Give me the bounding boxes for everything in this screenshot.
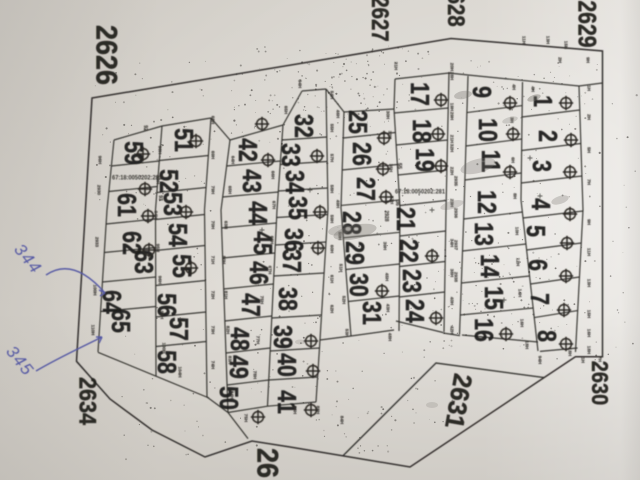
svg-text:1H: 1H <box>587 85 592 92</box>
svg-text:10: 10 <box>472 118 502 142</box>
svg-text:67:18:0050202:281: 67:18:0050202:281 <box>395 189 446 195</box>
svg-text:43H: 43H <box>386 304 391 313</box>
svg-text:54H: 54H <box>330 91 335 100</box>
svg-text:37: 37 <box>276 249 306 273</box>
svg-text:19H: 19H <box>450 103 455 112</box>
svg-text:46H: 46H <box>336 110 341 119</box>
svg-text:4: 4 <box>525 198 555 211</box>
svg-text:35H: 35H <box>389 164 394 173</box>
svg-text:65H: 65H <box>228 186 233 195</box>
svg-text:26: 26 <box>346 142 376 166</box>
svg-text:31H: 31H <box>394 62 399 71</box>
svg-text:35: 35 <box>282 196 312 220</box>
svg-text:29H: 29H <box>450 112 455 121</box>
svg-text:72H: 72H <box>211 291 216 300</box>
svg-text:62H: 62H <box>330 305 335 314</box>
svg-text:2626: 2626 <box>89 25 123 85</box>
svg-text:100H: 100H <box>93 285 98 297</box>
svg-text:61: 61 <box>111 193 141 217</box>
svg-text:2634: 2634 <box>74 377 101 425</box>
svg-text:2629: 2629 <box>573 0 601 47</box>
svg-text:28H: 28H <box>450 72 455 81</box>
svg-text:55H: 55H <box>330 124 335 133</box>
svg-text:60H: 60H <box>330 245 335 254</box>
svg-text:30: 30 <box>343 273 373 297</box>
svg-text:57: 57 <box>163 317 193 341</box>
svg-text:11H: 11H <box>522 36 527 45</box>
svg-text:15H: 15H <box>587 310 592 319</box>
svg-text:16: 16 <box>468 318 498 342</box>
svg-text:18H: 18H <box>568 348 573 357</box>
svg-text:69H: 69H <box>211 151 216 160</box>
svg-text:8: 8 <box>531 330 561 342</box>
svg-text:94H: 94H <box>298 80 303 89</box>
svg-text:58H: 58H <box>330 185 335 194</box>
svg-text:45H: 45H <box>385 273 390 282</box>
svg-text:2630: 2630 <box>587 361 614 405</box>
svg-text:37H: 37H <box>390 196 395 205</box>
svg-text:2928: 2928 <box>383 210 389 221</box>
svg-text:13: 13 <box>468 222 498 246</box>
svg-text:6: 6 <box>522 259 552 271</box>
svg-text:65: 65 <box>105 309 135 333</box>
svg-text:2: 2 <box>532 130 562 142</box>
svg-text:63H: 63H <box>224 221 229 230</box>
svg-text:16H: 16H <box>587 329 592 338</box>
svg-text:8H: 8H <box>513 193 518 200</box>
svg-text:2935: 2935 <box>454 176 459 187</box>
svg-text:2936: 2936 <box>454 208 459 219</box>
svg-text:57H: 57H <box>330 154 335 163</box>
svg-text:15H: 15H <box>564 41 569 50</box>
svg-text:94H: 94H <box>538 356 543 365</box>
svg-text:7H: 7H <box>587 179 592 186</box>
svg-text:27: 27 <box>350 177 380 201</box>
svg-text:9H: 9H <box>587 219 592 226</box>
svg-text:6TH: 6TH <box>268 266 273 275</box>
svg-text:94H: 94H <box>154 211 159 220</box>
svg-text:42: 42 <box>232 138 262 162</box>
svg-text:48H: 48H <box>388 333 393 342</box>
svg-text:86H: 86H <box>293 406 298 415</box>
svg-text:1H: 1H <box>581 357 586 364</box>
svg-text:14: 14 <box>474 254 504 278</box>
svg-text:67H: 67H <box>272 201 277 210</box>
svg-text:2H: 2H <box>587 114 592 121</box>
svg-text:55: 55 <box>396 163 402 169</box>
svg-text:96H: 96H <box>98 156 103 165</box>
svg-text:32: 32 <box>288 114 318 138</box>
svg-text:15: 15 <box>478 286 508 310</box>
svg-text:77H: 77H <box>256 336 261 345</box>
svg-text:12: 12 <box>471 190 501 214</box>
svg-text:53H: 53H <box>345 329 350 338</box>
svg-text:18H: 18H <box>525 341 530 350</box>
svg-text:80H: 80H <box>222 256 227 265</box>
svg-text:75H: 75H <box>244 414 249 423</box>
svg-text:34: 34 <box>279 170 309 194</box>
svg-text:84H: 84H <box>340 416 345 425</box>
svg-text:66H: 66H <box>271 171 276 180</box>
svg-text:51: 51 <box>168 128 198 152</box>
svg-text:104H: 104H <box>178 367 183 379</box>
svg-text:20H: 20H <box>450 63 455 72</box>
svg-text:83H: 83H <box>228 356 233 365</box>
svg-text:56: 56 <box>151 293 181 317</box>
svg-text:65H: 65H <box>284 106 289 115</box>
svg-text:22H: 22H <box>450 167 455 176</box>
svg-text:2628: 2628 <box>443 0 470 27</box>
svg-text:18H: 18H <box>587 346 592 355</box>
svg-text:68H: 68H <box>211 116 216 125</box>
svg-text:2938: 2938 <box>454 272 459 283</box>
svg-text:13H: 13H <box>546 36 551 45</box>
svg-text:49H: 49H <box>336 200 341 209</box>
svg-text:4H: 4H <box>512 84 517 91</box>
svg-text:33H: 33H <box>388 131 393 140</box>
svg-text:19: 19 <box>409 148 439 172</box>
svg-text:9H: 9H <box>586 57 591 64</box>
svg-text:81H: 81H <box>224 291 229 300</box>
svg-text:2930: 2930 <box>97 185 102 196</box>
svg-text:39H: 39H <box>383 242 388 251</box>
svg-text:52H: 52H <box>342 296 347 305</box>
svg-text:5H: 5H <box>587 147 592 154</box>
svg-text:61H: 61H <box>330 275 335 284</box>
svg-text:2933: 2933 <box>95 237 100 248</box>
svg-text:11H: 11H <box>587 248 592 257</box>
svg-text:23: 23 <box>396 269 426 293</box>
svg-text:40H: 40H <box>450 297 455 306</box>
svg-text:10H: 10H <box>515 227 520 236</box>
svg-text:50: 50 <box>213 386 243 410</box>
svg-text:40: 40 <box>271 353 301 377</box>
svg-text:78H: 78H <box>253 371 258 380</box>
svg-text:7: 7 <box>524 293 554 305</box>
svg-text:100H: 100H <box>162 343 167 355</box>
svg-text:58: 58 <box>151 350 181 374</box>
svg-text:21H: 21H <box>450 135 455 144</box>
svg-text:2627: 2627 <box>367 0 394 42</box>
svg-text:6H: 6H <box>511 157 516 164</box>
svg-text:74H: 74H <box>211 361 216 370</box>
svg-text:59H: 59H <box>330 215 335 224</box>
svg-text:17: 17 <box>404 82 434 106</box>
svg-text:64H: 64H <box>231 156 236 165</box>
svg-text:3: 3 <box>526 160 556 172</box>
svg-text:44: 44 <box>242 201 272 225</box>
svg-text:26: 26 <box>250 448 284 478</box>
svg-text:54: 54 <box>162 223 192 247</box>
svg-text:31: 31 <box>356 301 386 325</box>
svg-text:24: 24 <box>399 299 429 323</box>
svg-text:75H: 75H <box>260 296 265 305</box>
svg-text:13H: 13H <box>587 279 592 288</box>
svg-text:14H: 14H <box>518 289 523 298</box>
svg-text:84H: 84H <box>230 391 235 400</box>
svg-text:30H: 30H <box>386 111 391 120</box>
svg-text:36: 36 <box>394 200 400 206</box>
svg-text:32H: 32H <box>450 144 455 153</box>
svg-text:67:18:0050202:282: 67:18:0050202:282 <box>112 175 163 181</box>
svg-text:39: 39 <box>267 325 297 349</box>
svg-text:110H: 110H <box>91 325 96 336</box>
svg-text:79H: 79H <box>211 186 216 195</box>
svg-text:96H: 96H <box>158 276 163 285</box>
svg-text:70H: 70H <box>211 221 216 230</box>
svg-text:43: 43 <box>236 169 266 193</box>
svg-text:68H: 68H <box>270 236 275 245</box>
svg-text:18: 18 <box>406 119 436 143</box>
svg-text:73H: 73H <box>211 326 216 335</box>
svg-text:33: 33 <box>275 143 305 167</box>
svg-text:71H: 71H <box>211 256 216 265</box>
svg-text:99H: 99H <box>160 311 165 320</box>
svg-text:82H: 82H <box>226 326 231 335</box>
svg-text:29: 29 <box>339 241 369 265</box>
svg-text:16H: 16H <box>520 319 525 328</box>
svg-text:88H: 88H <box>316 406 321 415</box>
svg-text:90H: 90H <box>158 146 163 155</box>
svg-text:95H: 95H <box>156 244 161 253</box>
svg-text:42H: 42H <box>450 326 455 335</box>
svg-text:36: 36 <box>278 228 308 252</box>
svg-text:38: 38 <box>272 287 302 311</box>
svg-text:21: 21 <box>390 207 420 231</box>
